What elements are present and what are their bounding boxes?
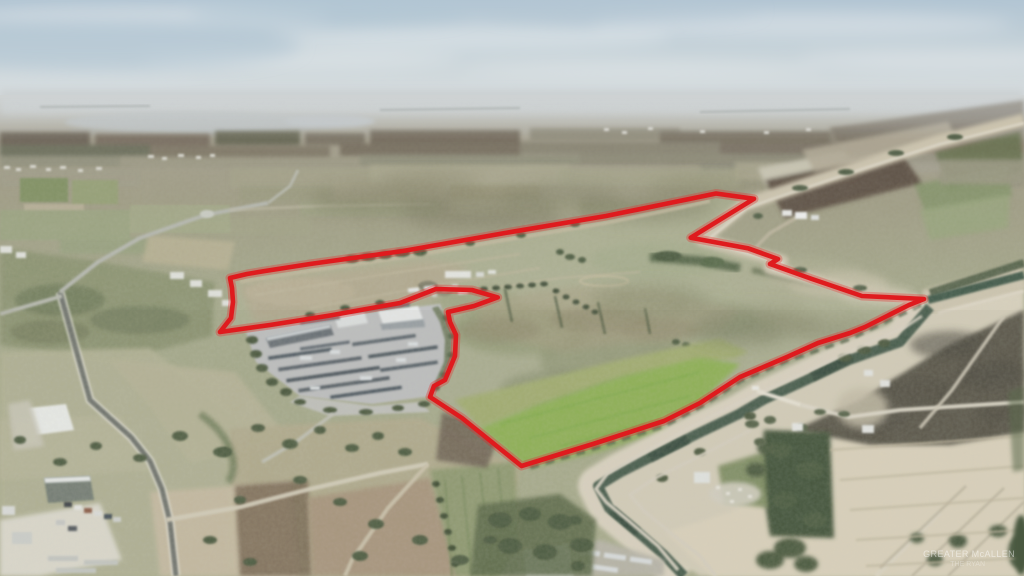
svg-text:THE RYAN: THE RYAN bbox=[950, 561, 985, 568]
svg-text:GREATER McALLEN: GREATER McALLEN bbox=[923, 549, 1015, 559]
